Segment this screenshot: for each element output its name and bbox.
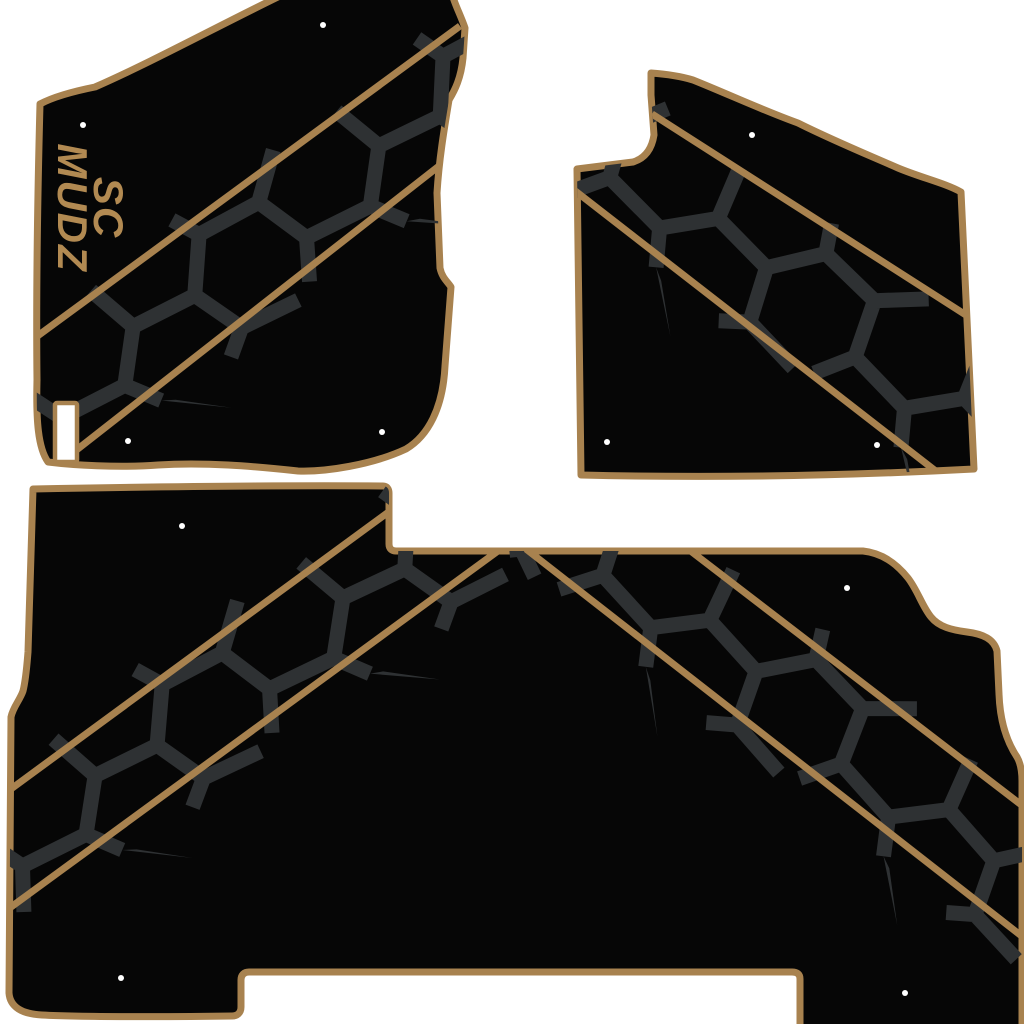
logo-line-2: MUDZ: [49, 143, 96, 272]
mounting-hole: [844, 585, 850, 591]
mounting-hole: [749, 132, 755, 138]
mounting-hole: [874, 442, 880, 448]
mounting-hole: [604, 439, 610, 445]
mounting-hole: [320, 22, 326, 28]
heel-pad: [55, 403, 77, 462]
mounting-hole: [118, 975, 124, 981]
floor-mat-set-image: SC MUDZ: [0, 0, 1024, 1024]
mounting-hole: [80, 122, 86, 128]
mat-outline: [577, 73, 974, 476]
mounting-hole: [902, 990, 908, 996]
floor-mat-set-svg: SC MUDZ: [0, 0, 1024, 1024]
mounting-hole: [179, 523, 185, 529]
mounting-hole: [125, 438, 131, 444]
mounting-hole: [379, 429, 385, 435]
